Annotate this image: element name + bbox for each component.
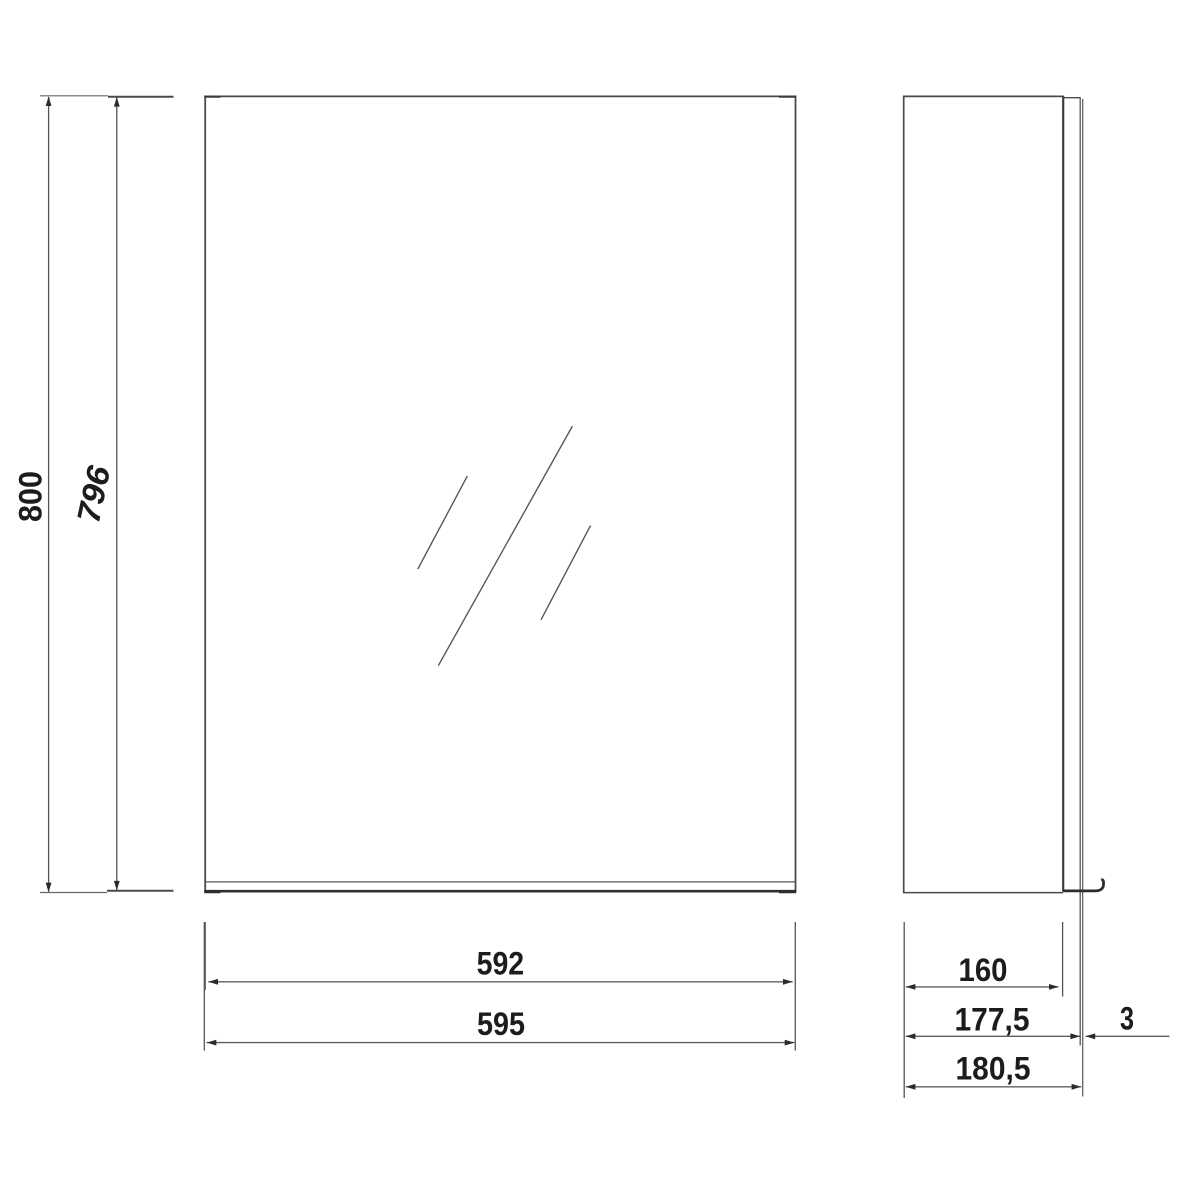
svg-text:177,5: 177,5: [955, 1002, 1030, 1038]
svg-text:800: 800: [13, 471, 49, 522]
svg-text:160: 160: [959, 952, 1008, 988]
svg-text:592: 592: [477, 945, 525, 981]
svg-text:595: 595: [477, 1006, 525, 1042]
svg-text:180,5: 180,5: [956, 1051, 1031, 1087]
svg-text:3: 3: [1120, 1001, 1134, 1037]
